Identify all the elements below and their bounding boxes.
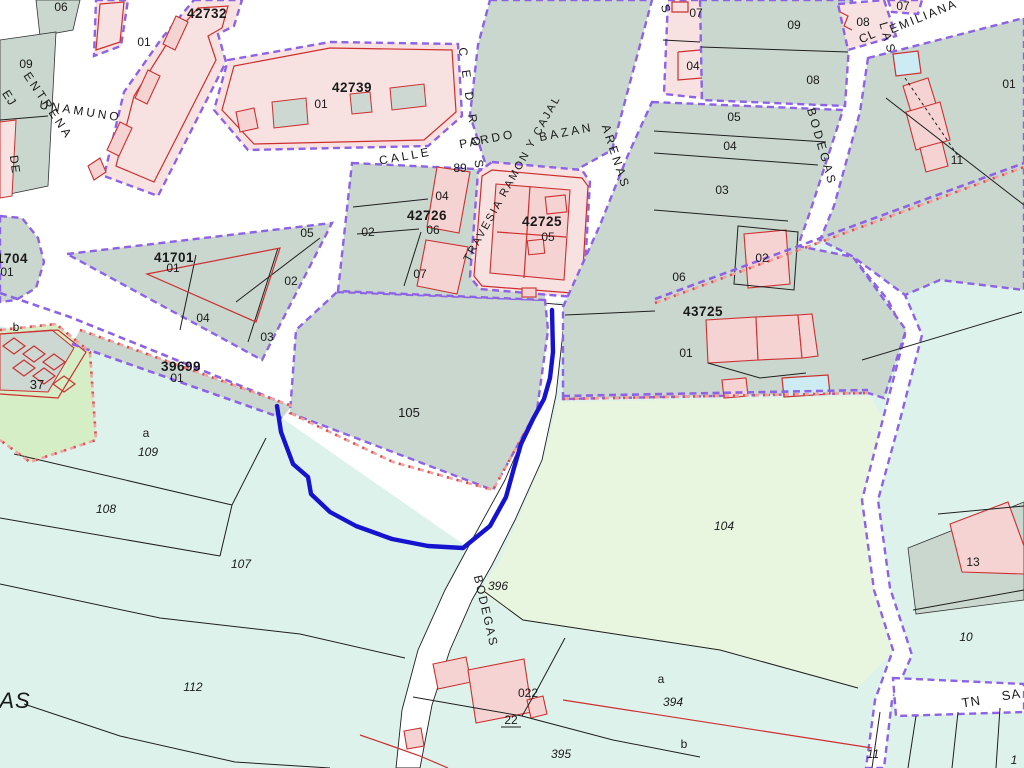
parcel-label-108: 108	[96, 502, 116, 516]
parcel-label-06: 06	[54, 0, 68, 14]
parcel-label-07: 07	[689, 6, 703, 20]
parcel-label-01: 01	[0, 265, 14, 279]
parcel-label-a: a	[658, 672, 665, 686]
building-42725-annex-1	[545, 195, 567, 214]
parcel-label-89: 89	[453, 161, 467, 175]
building-cyan-topright	[893, 51, 921, 76]
parcel-label-112: 112	[183, 680, 202, 694]
street-label-as-fragment: AS	[0, 688, 31, 713]
parcel-label-05: 05	[300, 226, 314, 240]
parcel-label-04: 04	[196, 311, 210, 325]
street-label-tn: TN	[961, 693, 982, 711]
parcel-label-01: 01	[170, 371, 184, 385]
parcel-label-01: 01	[1002, 77, 1016, 91]
parcel-label-05: 05	[727, 110, 741, 124]
cadastral-map-viewport[interactable]: CALLEPARDOBAZANTRAVESIA RAMON Y CAJALARE…	[0, 0, 1024, 768]
building-42739-4	[236, 108, 258, 132]
parcel-label-105: 105	[398, 405, 420, 420]
building-42725-annex-3	[522, 288, 536, 297]
parcel-label-03: 03	[715, 183, 729, 197]
parcel-label-396: 396	[488, 579, 508, 593]
parcel-label-104: 104	[714, 519, 734, 533]
parcel-label-395: 395	[551, 747, 571, 761]
parcel-label-04: 04	[435, 189, 449, 203]
building-42739-2	[350, 92, 372, 114]
parcel-label-a: a	[143, 426, 150, 440]
parcel-label-02: 02	[284, 274, 298, 288]
parcel-label-04: 04	[723, 139, 737, 153]
street-label-de: DE	[7, 154, 23, 174]
building-43725-a	[706, 317, 758, 363]
parcel-label-02: 02	[361, 225, 375, 239]
street-label-sa-fragment: SA	[1001, 686, 1022, 704]
block-code-43725: 43725	[683, 304, 723, 319]
parcel-label-01: 01	[679, 346, 693, 360]
parcel-label-05: 05	[541, 230, 555, 244]
parcel-label-b: b	[681, 737, 688, 751]
parcel-label-01: 01	[314, 97, 328, 111]
parcel-label-b: b	[13, 320, 20, 334]
parcel-label-08: 08	[806, 73, 820, 87]
parcel-label-02: 02	[755, 251, 769, 265]
parcel-label-01: 01	[166, 261, 180, 275]
parcel-label-022: 022	[518, 686, 538, 700]
parcel-label-109: 109	[138, 445, 158, 459]
block-code-42739: 42739	[332, 80, 372, 95]
parcel-label-07: 07	[413, 267, 427, 281]
parcel-label-13: 13	[966, 555, 980, 569]
cadastral-map[interactable]: CALLEPARDOBAZANTRAVESIA RAMON Y CAJALARE…	[0, 0, 1024, 768]
parcel-label-1: 1	[1011, 753, 1018, 767]
building-bottom-4	[404, 728, 424, 749]
parcel-label-09: 09	[19, 57, 33, 71]
building-42739-1	[272, 98, 308, 128]
parcel-label-394: 394	[663, 695, 683, 709]
parcel-label-11: 11	[951, 153, 964, 167]
parcel-label-06: 06	[672, 270, 686, 284]
block-code-1704-clipped: 1704	[0, 251, 28, 266]
block-code-42725: 42725	[522, 214, 562, 229]
building-43725-b	[756, 315, 802, 360]
parcel-label-03: 03	[260, 330, 274, 344]
parcel-label-11: 11	[867, 747, 879, 761]
parcel-label-04: 04	[686, 59, 700, 73]
block-code-42726: 42726	[407, 208, 447, 223]
parcel-label-09: 09	[787, 18, 801, 32]
parcel-label-22: 22	[504, 713, 518, 727]
parcel-label-01: 01	[137, 35, 151, 49]
parcel-label-08: 08	[856, 15, 870, 29]
building-42739-3	[390, 84, 426, 110]
parcel-label-06: 06	[426, 223, 440, 237]
block-09-08-shape	[700, 0, 852, 106]
parcel-label-07: 07	[896, 0, 910, 13]
block-code-42732: 42732	[187, 6, 227, 21]
parcel-label-10: 10	[959, 630, 973, 644]
parcel-label-107: 107	[231, 557, 252, 571]
parcel-label-37: 37	[30, 377, 44, 392]
